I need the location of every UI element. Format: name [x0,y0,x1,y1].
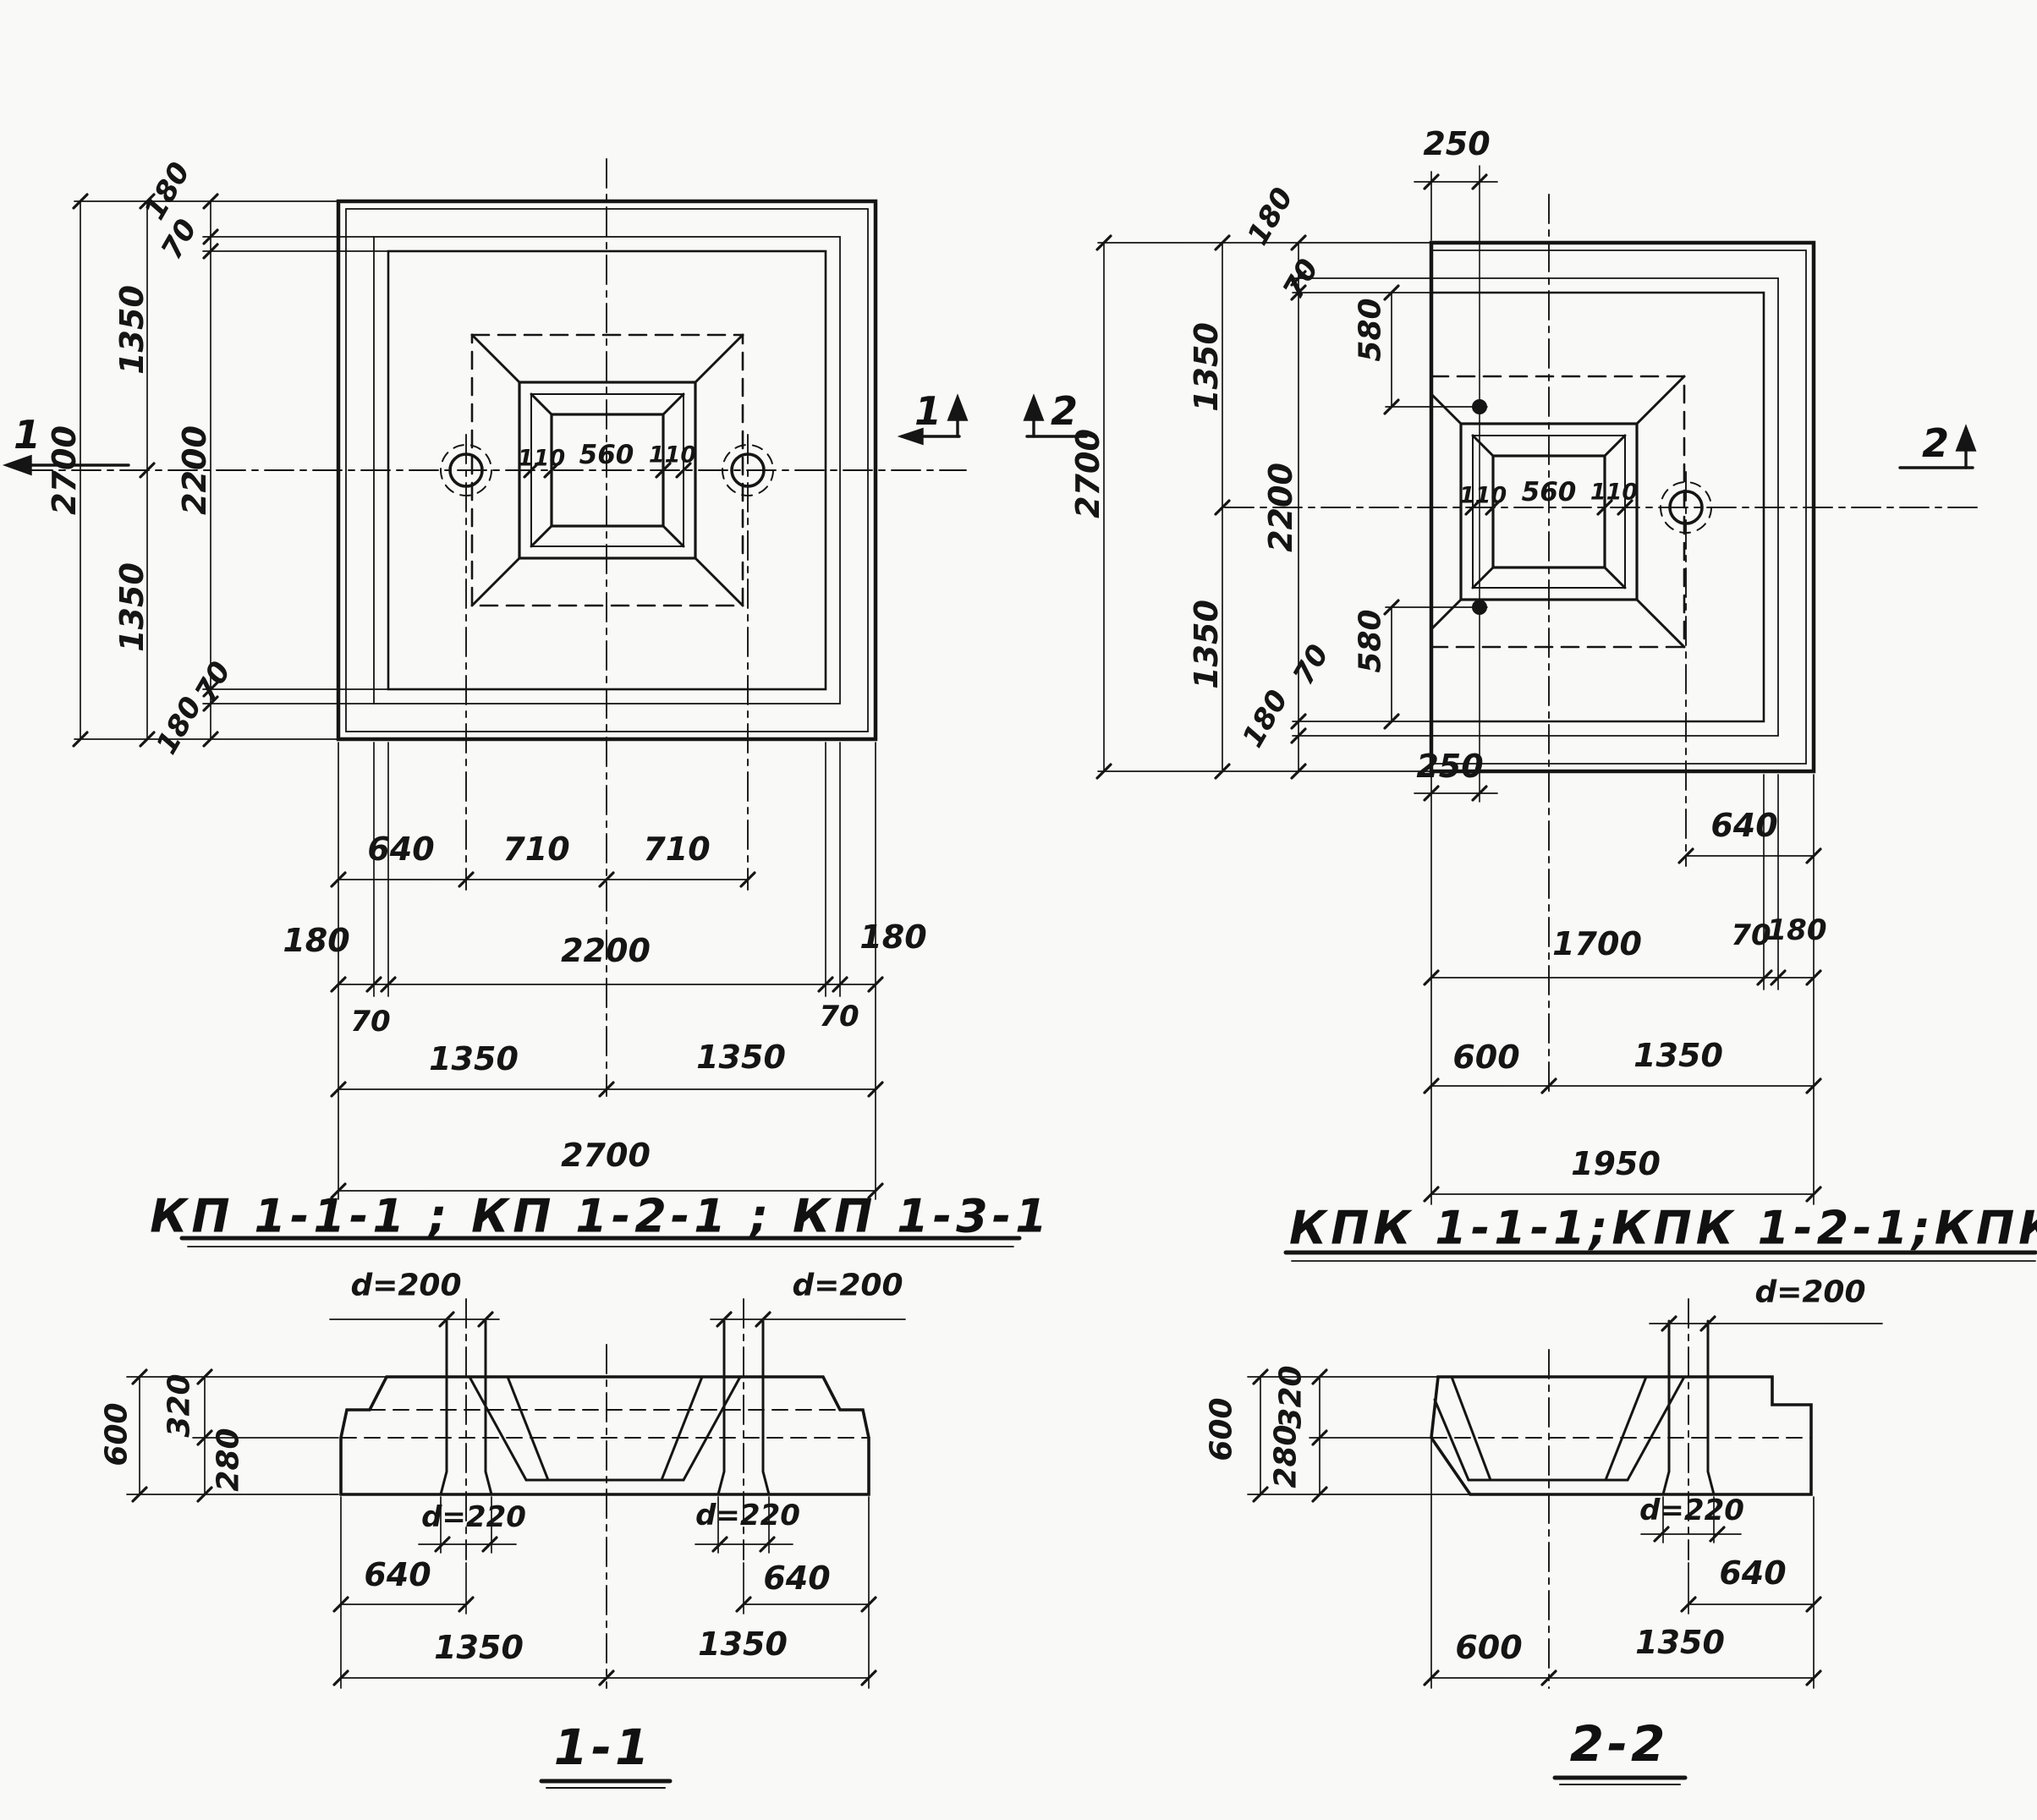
section-2-2-label: 2-2 [1570,1715,1669,1773]
dim-label: 2700 [1069,429,1106,518]
dim-label: 250 [1416,748,1483,785]
dimension-labels-layer: 2700135013502200180707018011056011064071… [0,0,2037,1820]
dim-label: d=200 [1754,1275,1865,1310]
dim-label: 180 [138,156,197,225]
cut-mark-2-left: 2 [1051,388,1078,434]
dim-label: 580 [1353,609,1388,672]
dim-label: 600 [1205,1397,1239,1461]
dim-label: 600 [1452,1039,1519,1076]
dim-label: 710 [643,831,710,868]
dim-label: 180 [859,918,926,956]
dim-label: 320 [1274,1365,1309,1428]
drawing-sheet: 2700135013502200180707018011056011064071… [0,0,2037,1820]
dim-label: 1350 [113,285,151,375]
dim-label: 250 [1423,125,1490,162]
dim-label: 180 [1236,684,1295,753]
dim-label: 2700 [46,425,83,515]
dim-label: 280 [1269,1424,1304,1488]
dim-label: 560 [1522,477,1577,507]
dim-label: 180 [283,922,349,959]
dim-label: 110 [1459,483,1507,509]
dim-label: 560 [579,440,634,470]
dim-label: 70 [1277,254,1326,305]
dim-label: d=220 [421,1500,526,1534]
dim-label: 1350 [429,1040,519,1077]
dim-label: 70 [350,1005,390,1039]
dim-label: 600 [1455,1629,1522,1666]
dim-label: 180 [150,691,209,759]
dim-label: 1350 [1635,1624,1725,1661]
dim-label: 1350 [1188,322,1225,412]
dim-label: d=220 [695,1499,800,1532]
dim-label: 2200 [176,425,213,515]
dim-label: 1350 [113,562,151,652]
dim-label: 180 [1241,182,1300,250]
dim-label: 710 [502,831,569,868]
dim-label: 640 [1719,1554,1786,1592]
dim-label: 2200 [561,932,651,969]
dim-label: 1350 [696,1039,786,1076]
dim-label: 110 [649,442,696,469]
dim-label: 1950 [1571,1145,1661,1182]
dim-label: 180 [1767,913,1827,947]
dim-label: 280 [211,1428,246,1491]
dim-label: d=200 [792,1269,903,1303]
dim-label: 70 [819,1000,859,1033]
dim-label: 640 [364,1556,431,1593]
dim-label: 640 [763,1560,830,1597]
dim-label: 1350 [1188,600,1225,689]
dim-label: 1350 [434,1629,524,1666]
dim-label: 1350 [698,1625,788,1663]
dim-label: 580 [1353,298,1388,361]
dim-label: 2700 [561,1137,651,1174]
dim-label: d=200 [350,1269,461,1303]
dim-label: 110 [1590,480,1638,506]
dim-label: 640 [367,831,434,868]
cut-mark-2-right: 2 [1922,420,1949,466]
dim-label: 1350 [1633,1037,1723,1074]
cut-mark-1-right: 1 [914,388,942,434]
dim-label: 640 [1710,807,1777,844]
dim-label: 1700 [1552,925,1642,962]
dim-label: 600 [100,1402,135,1466]
section-1-1-label: 1-1 [554,1719,653,1776]
cut-mark-1-left: 1 [14,412,41,458]
dim-label: 70 [1287,639,1336,691]
right-plan-title: КПК 1-1-1;КПК 1-2-1;КПК 1-3-1 [1289,1202,2037,1255]
dim-label: 110 [518,446,565,472]
dim-label: 2200 [1262,463,1299,552]
dim-label: 320 [162,1373,197,1437]
dim-label: d=220 [1639,1494,1744,1527]
dim-label: 70 [1731,918,1771,952]
left-plan-title: КП 1-1-1 ; КП 1-2-1 ; КП 1-3-1 [150,1190,1051,1243]
